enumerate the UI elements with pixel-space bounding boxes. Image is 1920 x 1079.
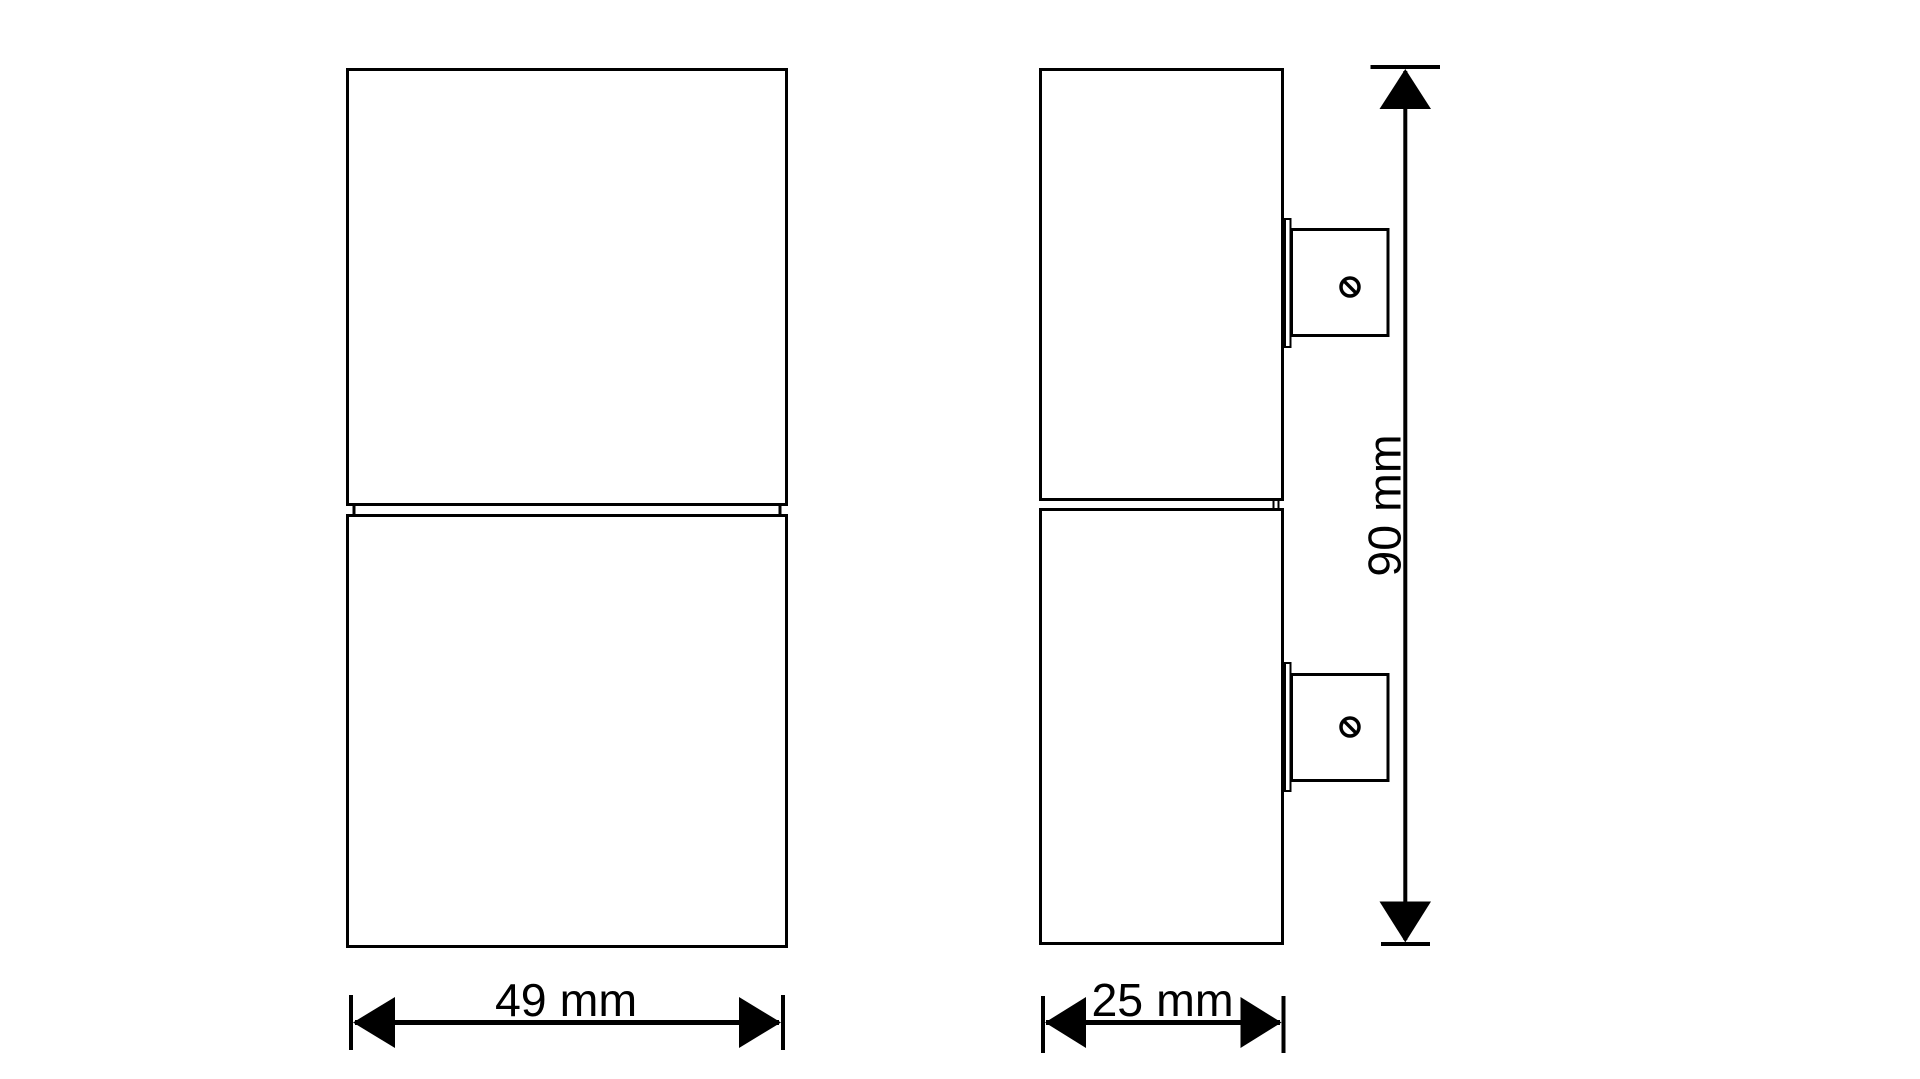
svg-text:90 mm: 90 mm — [1359, 434, 1411, 576]
svg-text:49 mm: 49 mm — [495, 974, 637, 1026]
svg-text:25 mm: 25 mm — [1091, 974, 1233, 1026]
